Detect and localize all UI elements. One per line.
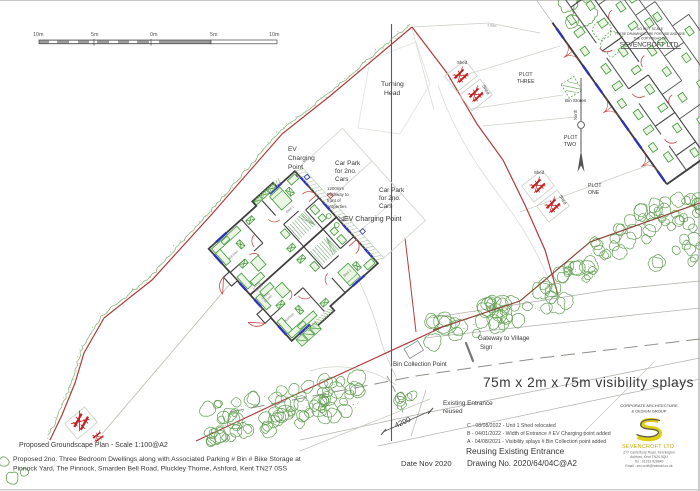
svg-text:A - 04/08/2021 - Visibility sp: A - 04/08/2021 - Visibility splays # Bin…	[467, 439, 606, 445]
svg-text:Pinnock Yard, The Pinnock, Sma: Pinnock Yard, The Pinnock, Smarden Bell …	[13, 466, 288, 473]
svg-text:Email : sev.croft@hotmail.co.u: Email : sev.croft@hotmail.co.uk	[625, 464, 673, 468]
svg-text:for 2no.: for 2no.	[335, 168, 357, 175]
svg-text:reused: reused	[443, 408, 463, 415]
svg-text:5m: 5m	[210, 32, 218, 38]
svg-text:75m x 2m x 75m visibility spla: 75m x 2m x 75m visibility splays	[483, 375, 694, 390]
svg-text:ONE: ONE	[588, 190, 600, 196]
svg-text:front of: front of	[327, 198, 341, 203]
svg-text:for 2no.: for 2no.	[379, 195, 401, 202]
svg-text:Cars: Cars	[379, 203, 393, 210]
svg-text:10m: 10m	[269, 32, 280, 38]
svg-text:PLOT: PLOT	[564, 135, 578, 141]
svg-text:EV: EV	[288, 146, 297, 153]
svg-text:Car Park: Car Park	[379, 187, 405, 194]
svg-text:CORPORATE ARCHITECTURE: CORPORATE ARCHITECTURE	[620, 403, 678, 408]
svg-text:1200mm: 1200mm	[327, 186, 344, 191]
svg-text:Cars: Cars	[335, 176, 349, 183]
svg-text:Car Park: Car Park	[335, 160, 361, 167]
svg-text:Proposed 2no. Three Bedroom Dw: Proposed 2no. Three Bedroom Dwellings al…	[13, 456, 301, 463]
svg-text:Shed: Shed	[534, 170, 545, 175]
svg-text:& DESIGN GROUP: & DESIGN GROUP	[632, 409, 667, 414]
svg-text:THREE: THREE	[517, 79, 535, 85]
svg-text:Pathway to: Pathway to	[327, 192, 349, 197]
svg-text:Sign: Sign	[480, 344, 493, 351]
svg-text:Date Nov 2020: Date Nov 2020	[401, 459, 452, 468]
svg-text:Head: Head	[384, 90, 400, 97]
svg-text:THESE DRAWINGS ARE FOR USE AND: THESE DRAWINGS ARE FOR USE AND ARE	[615, 32, 686, 36]
svg-text:10m: 10m	[33, 32, 44, 38]
svg-text:5m: 5m	[91, 32, 99, 38]
svg-text:PLOT: PLOT	[588, 183, 602, 189]
svg-text:properties: properties	[327, 204, 347, 209]
svg-text:Reusing Existing Entrance: Reusing Existing Entrance	[466, 446, 565, 456]
svg-text:SEVENCROFT LTD.: SEVENCROFT LTD.	[622, 444, 676, 450]
svg-text:Proposed Groundscape Plan - Sc: Proposed Groundscape Plan - Scale 1:100@…	[19, 442, 168, 449]
svg-text:TWO: TWO	[564, 142, 576, 148]
svg-text:DO NOT SCALE: DO NOT SCALE	[637, 27, 664, 31]
svg-text:THE COPYRIGHT OF: THE COPYRIGHT OF	[633, 37, 666, 41]
svg-text:Point: Point	[288, 164, 303, 171]
svg-text:B - 04/01/2022 - Width of Entr: B - 04/01/2022 - Width of Entrance # EV …	[467, 431, 611, 437]
svg-text:Gateway to Village: Gateway to Village	[478, 335, 530, 342]
svg-text:Ashford, Kent TN24 0QU: Ashford, Kent TN24 0QU	[630, 455, 668, 459]
svg-text:North: North	[573, 109, 578, 120]
svg-text:Shed: Shed	[457, 60, 468, 65]
svg-text:277 Canterbury Road, Kenningto: 277 Canterbury Road, Kennington	[623, 451, 675, 455]
svg-text:SEVENCROFT LTD.: SEVENCROFT LTD.	[620, 42, 681, 49]
svg-text:Existing Entrance: Existing Entrance	[443, 400, 493, 407]
svg-text:C - 08/08/2022 - Unit 1 Shed r: C - 08/08/2022 - Unit 1 Shed relocated	[467, 423, 556, 429]
svg-text:Tel : 01233 628849: Tel : 01233 628849	[635, 460, 664, 464]
svg-text:Drawing No. 2020/64/04C@A2: Drawing No. 2020/64/04C@A2	[467, 459, 578, 468]
svg-text:Bin Collection Point: Bin Collection Point	[393, 361, 447, 368]
svg-text:Turning: Turning	[381, 81, 404, 88]
svg-text:Charging: Charging	[288, 155, 315, 162]
svg-text:0m: 0m	[150, 32, 158, 38]
svg-text:EV Charging Point: EV Charging Point	[344, 216, 402, 223]
svg-text:Bin Stores: Bin Stores	[565, 98, 587, 103]
svg-text:PLOT: PLOT	[519, 72, 533, 78]
